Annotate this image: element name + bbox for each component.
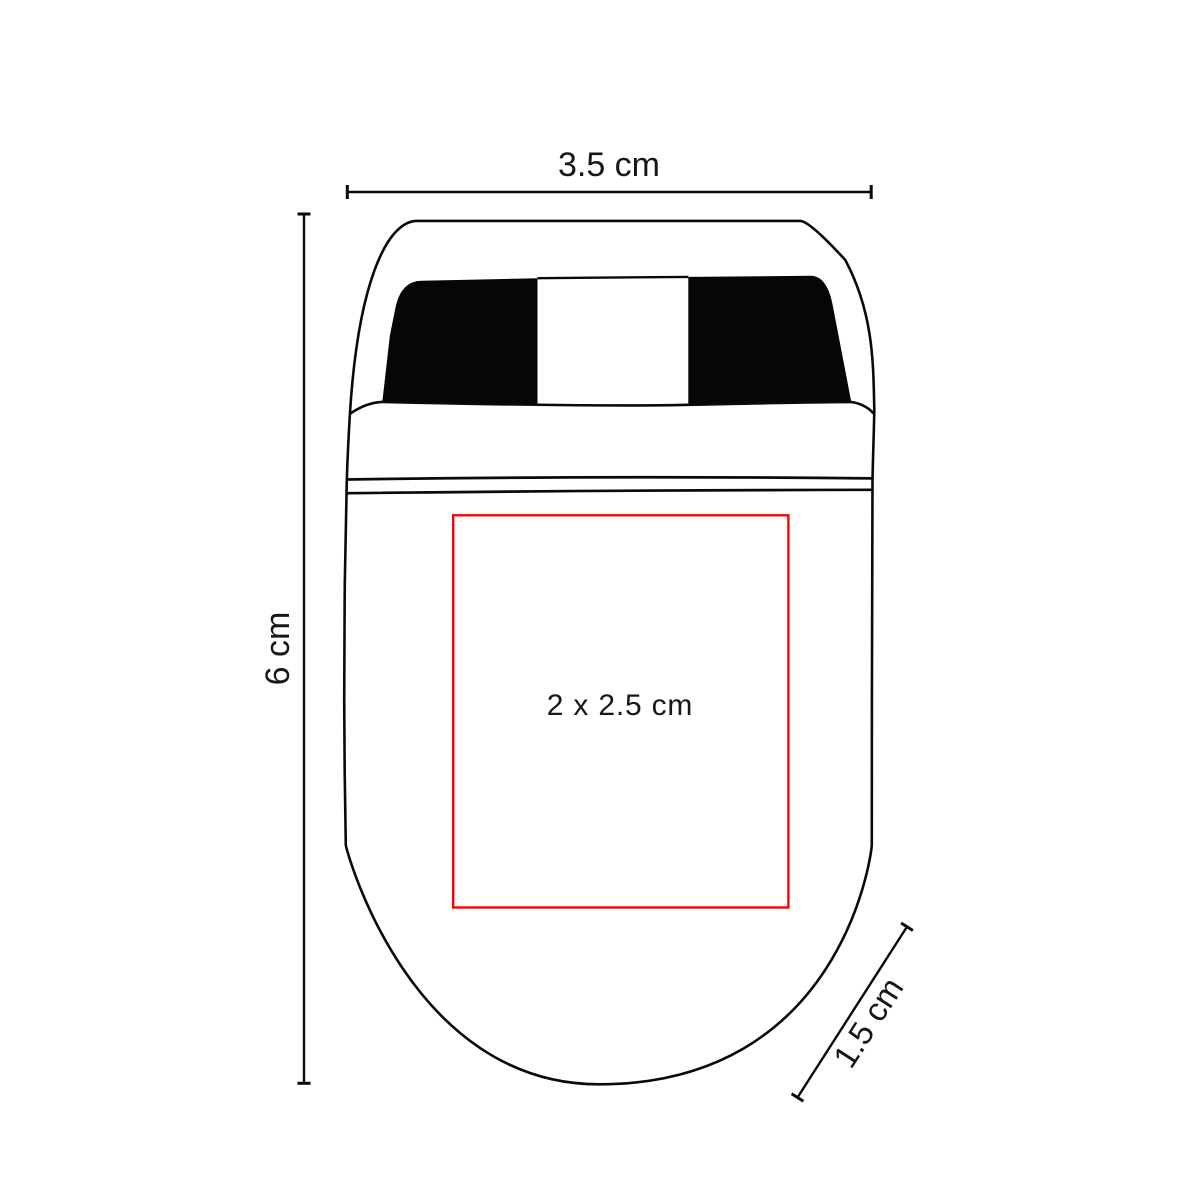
svg-text:2 x 2.5 cm: 2 x 2.5 cm xyxy=(547,689,693,722)
svg-text:3.5 cm: 3.5 cm xyxy=(558,146,660,184)
svg-text:6 cm: 6 cm xyxy=(259,612,297,686)
